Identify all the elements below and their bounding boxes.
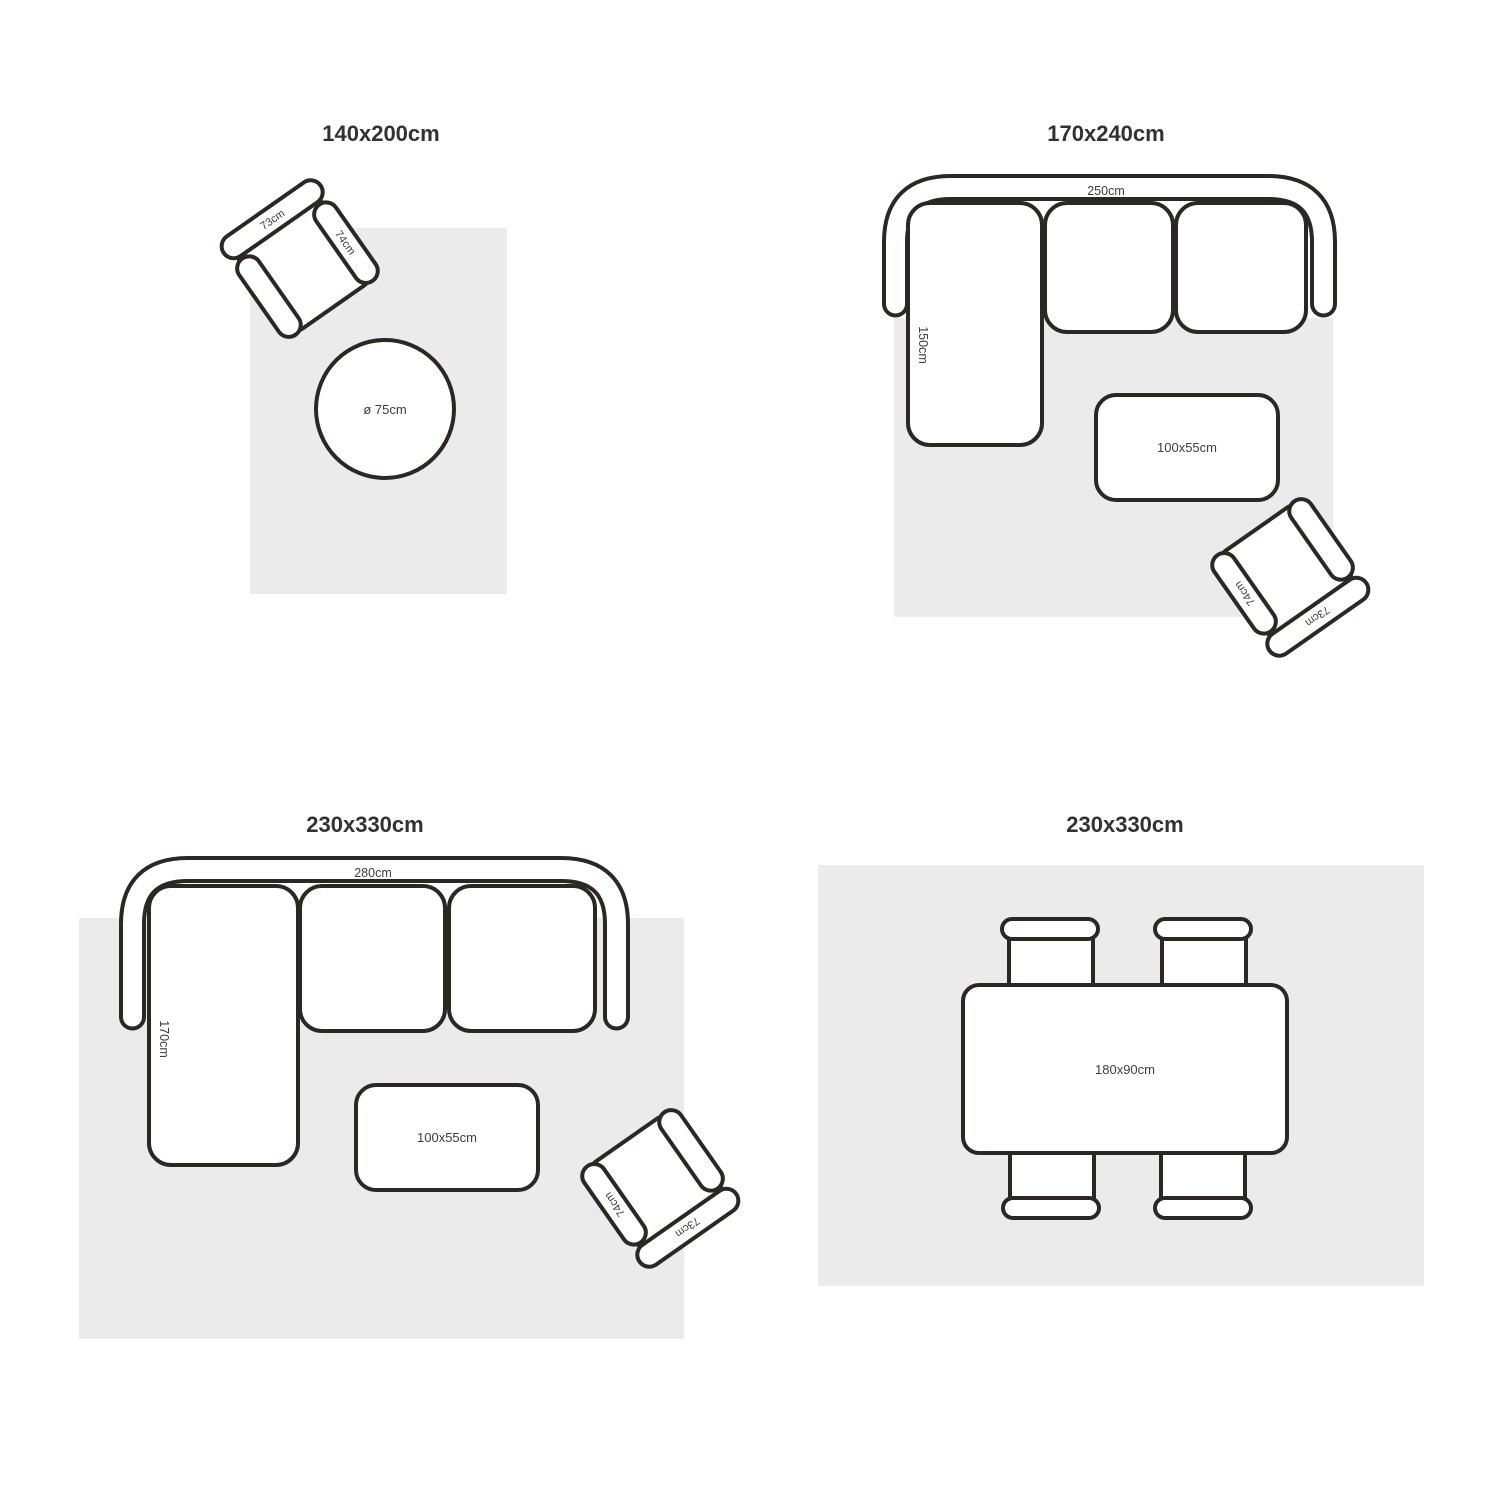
dining-chair-backrest [1002,919,1098,939]
sofa-cushion [449,886,595,1031]
round-table-label: ø 75cm [363,402,406,417]
section-title: 140x200cm [322,121,439,146]
sofa-chaise-label: 170cm [157,1020,171,1058]
dining-chair-backrest [1155,919,1251,939]
rug-size-guide-canvas: 140x200cm ø 75cm 73cm 74cm 170x240cm 250… [0,0,1500,1500]
section-rug-140x200: 140x200cm ø 75cm 73cm 74cm [217,121,507,594]
dining-table-label: 180x90cm [1095,1062,1155,1077]
section-rug-230x330-dining: 230x330cm 180x90cm [818,812,1424,1286]
section-title: 230x330cm [1066,812,1183,837]
dining-chair-backrest [1155,1198,1251,1218]
section-title: 170x240cm [1047,121,1164,146]
section-title: 230x330cm [306,812,423,837]
section-rug-230x330-living: 230x330cm 280cm 170cm 100x55cm 73cm 74cm [79,812,743,1339]
sofa-chaise-label: 150cm [916,326,930,364]
sofa-width-label: 250cm [1087,184,1125,198]
sofa-width-label: 280cm [354,866,392,880]
dining-chair-backrest [1003,1198,1099,1218]
sofa-chaise [908,203,1042,445]
sofa-cushion [1045,203,1173,332]
sofa-cushion [300,886,445,1031]
coffee-table-label: 100x55cm [1157,440,1217,455]
coffee-table-label: 100x55cm [417,1130,477,1145]
sofa-cushion [1176,203,1306,332]
section-rug-170x240: 170x240cm 250cm 150cm 100x55cm 73cm 74cm [894,121,1373,660]
rug-size-guide: 140x200cm ø 75cm 73cm 74cm 170x240cm 250… [0,0,1500,1500]
